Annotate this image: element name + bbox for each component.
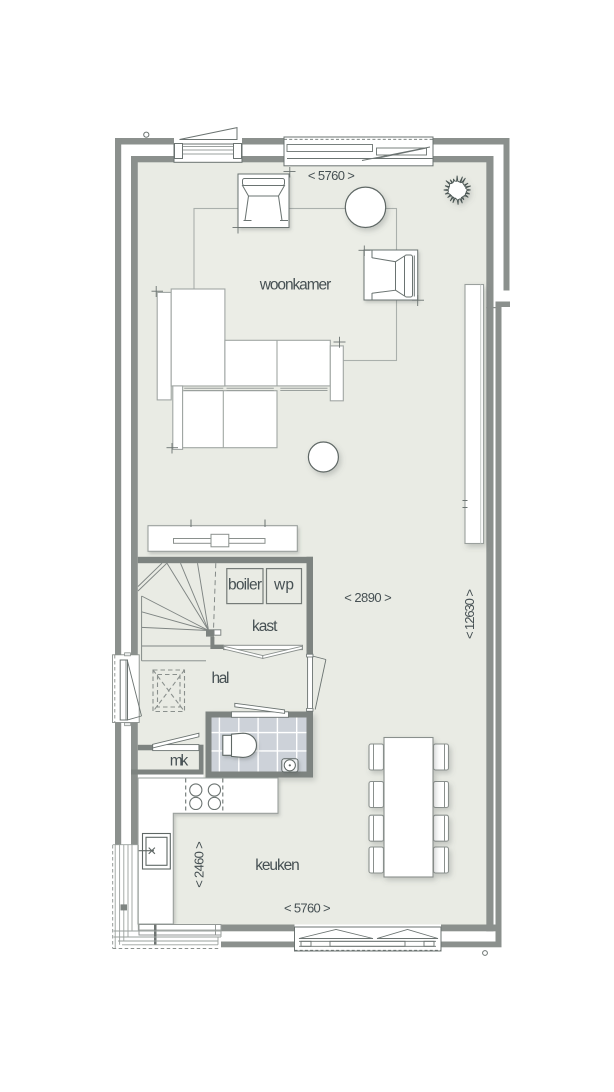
svg-text:wp: wp xyxy=(273,577,294,594)
svg-text:< 5760 >: < 5760 > xyxy=(284,901,331,916)
svg-text:< 2460 >: < 2460 > xyxy=(192,841,207,888)
svg-text:< 2890 >: < 2890 > xyxy=(344,590,392,605)
svg-text:hal: hal xyxy=(212,670,230,687)
svg-text:< 12630 >: < 12630 > xyxy=(462,589,477,639)
svg-text:< 5760 >: < 5760 > xyxy=(308,168,355,183)
svg-text:woonkamer: woonkamer xyxy=(259,277,332,294)
svg-text:kast: kast xyxy=(252,618,278,635)
svg-text:keuken: keuken xyxy=(255,857,300,874)
svg-text:mk: mk xyxy=(170,753,189,770)
svg-text:boiler: boiler xyxy=(228,577,262,594)
